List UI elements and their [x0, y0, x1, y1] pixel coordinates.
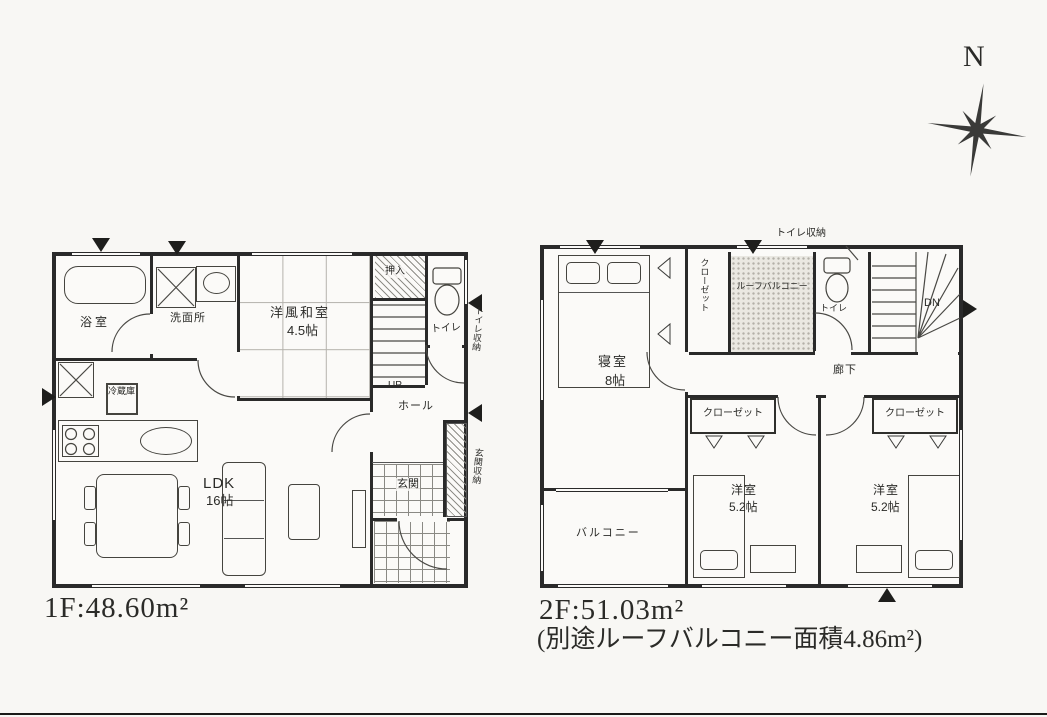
scan-edge-line [0, 713, 1047, 715]
room-label-toilet-1f: トイレ [431, 322, 462, 336]
room-label-entrance: 玄関 [396, 478, 420, 491]
room-label-hallway: 廊下 [833, 364, 857, 377]
room-label-ldk: LDK [203, 475, 235, 492]
room-label-washitsu: 洋風和室 [270, 306, 330, 321]
room-label-bath: 浴室 [80, 316, 110, 330]
room-label-washitsu-size: 4.5帖 [287, 324, 318, 339]
stairs-up-label: UP [388, 380, 402, 392]
room-label-bedroom-size: 8帖 [605, 374, 625, 389]
room-label-toilet-2f: トイレ [820, 303, 847, 313]
room-label-balcony: バルコニー [576, 527, 641, 540]
stairs-dn-label: DN [924, 297, 940, 310]
room-label-ldk-size: 16帖 [206, 494, 233, 509]
room-label-bedroom: 寝室 [598, 355, 628, 370]
floorplan-scan: { "colors": {"wall": "#2a2a2a", "paper":… [0, 0, 1047, 717]
floor2-area-caption: 2F:51.03m² [539, 594, 684, 627]
compass-north-label: N [963, 40, 985, 75]
room-label-west-right: 洋室 [873, 484, 899, 498]
room-label-west-left: 洋室 [731, 484, 757, 498]
callout-toilet-storage: トイレ収納 [776, 228, 826, 240]
room-label-west-right-size: 5.2帖 [871, 501, 900, 515]
floor1-symbols [40, 230, 496, 610]
room-label-oshiire: 押入 [384, 266, 406, 278]
room-label-washroom: 洗面所 [170, 312, 206, 325]
room-label-hall: ホール [398, 400, 434, 413]
floor1-area-caption: 1F:48.60m² [44, 592, 189, 625]
room-label-west-left-size: 5.2帖 [729, 501, 758, 515]
closet-label-left: クローゼット [690, 408, 776, 420]
floor2-roof-balcony-note: (別途ルーフバルコニー面積4.86m²) [537, 626, 922, 655]
refrigerator-label: 冷蔵庫 [108, 386, 136, 397]
closet-label-right: クローゼット [872, 408, 958, 420]
compass-rose-icon [900, 70, 1045, 200]
room-label-roof-balcony: ルーフバルコニー [733, 281, 811, 291]
room-label-closet-side: クローゼット [699, 258, 709, 348]
